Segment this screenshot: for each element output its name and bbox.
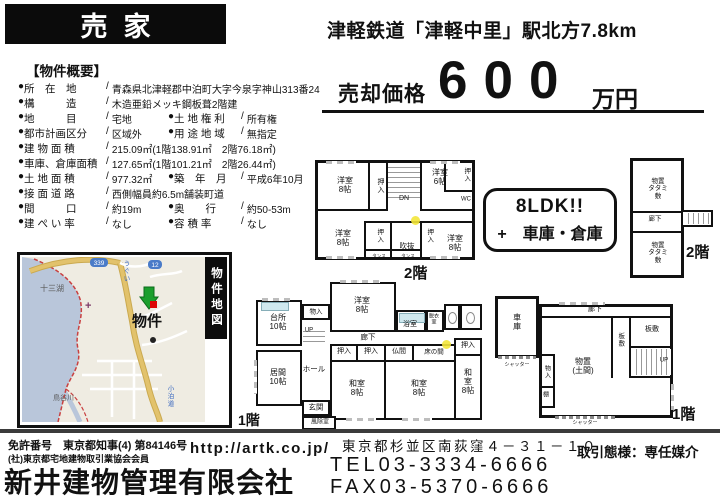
house-1f-label: 1階 bbox=[238, 410, 260, 430]
room-label: シャッター bbox=[572, 421, 597, 427]
overview-row: ●構 造/木造亜鉛メッキ鋼板葺2階建 bbox=[18, 96, 318, 111]
overview-row: ●所 在 地/青森県北津軽郡中泊町大字今泉字神山313番24 bbox=[18, 81, 318, 96]
overview-field: ●車庫、倉庫面積/127.65㎡(1階101.21㎡ 2階26.44㎡) bbox=[18, 156, 276, 171]
room-label: 床の間 bbox=[424, 348, 444, 355]
price-unit: 万円 bbox=[592, 80, 638, 114]
highlight-dot bbox=[411, 216, 420, 225]
field-value: 区域外 bbox=[112, 126, 142, 141]
map-tab-title: 物件地図 bbox=[205, 257, 227, 339]
field-label: 用 途 地 域 bbox=[174, 126, 238, 141]
overview-row: ●土 地 面 積/977.32㎡●築 年 月/平成6年10月 bbox=[18, 171, 318, 186]
field-value: 約50-53m bbox=[247, 201, 291, 216]
room-label: 和室 8帖 bbox=[349, 379, 365, 397]
phone-number: TEL03-3334-6666 bbox=[330, 454, 551, 477]
field-label: 地 目 bbox=[24, 111, 103, 126]
room-label: 押入 bbox=[461, 342, 475, 350]
overview-rows: ●所 在 地/青森県北津軽郡中泊町大字今泉字神山313番24●構 造/木造亜鉛メ… bbox=[18, 81, 318, 231]
field-value: 平成6年10月 bbox=[247, 171, 304, 186]
field-label: 建 ぺ い 率 bbox=[24, 216, 103, 231]
house-1f-floorplan: 洋室 8帖物入台所 10帖浴室脱衣 室UP廊下居間 10帖ホール玄関風除室押入押… bbox=[256, 282, 482, 430]
overview-row: ●建 ぺ い 率/なし●容 積 率/なし bbox=[18, 216, 318, 231]
room-label: 棚 bbox=[543, 393, 549, 400]
field-label: 築 年 月 bbox=[174, 171, 238, 186]
company-address: 東京都杉並区南荻窪４－３１－１０ bbox=[342, 435, 598, 455]
field-separator: / bbox=[103, 81, 112, 96]
field-value: なし bbox=[112, 216, 132, 231]
room-label: UP bbox=[305, 328, 313, 335]
field-separator: / bbox=[103, 111, 112, 126]
room-label: 押入 bbox=[425, 229, 432, 244]
company-name: 新井建物管理有限会社 bbox=[4, 461, 294, 501]
field-value: なし bbox=[247, 216, 267, 231]
field-label: 建 物 面 積 bbox=[24, 141, 103, 156]
room-label: 物置 (土間) bbox=[572, 357, 593, 375]
room-label: 廊下 bbox=[588, 306, 602, 314]
overview-field: ●土 地 面 積/977.32㎡ bbox=[18, 171, 168, 186]
field-value: 215.09㎡(1階138.91㎡ 2階76.18㎡) bbox=[112, 141, 276, 156]
price-label: 売却価格 bbox=[338, 78, 426, 108]
field-separator: / bbox=[103, 126, 112, 141]
field-separator: / bbox=[103, 216, 112, 231]
field-value: 所有権 bbox=[247, 111, 277, 126]
toilet-fixture bbox=[466, 312, 475, 324]
license-number: 免許番号 東京都知事(4) 第84146号 bbox=[8, 437, 187, 453]
overview-field: ●都市計画区分/区域外 bbox=[18, 126, 168, 141]
overview-field: ●築 年 月/平成6年10月 bbox=[168, 171, 304, 186]
fax-number: FAX03-5370-6666 bbox=[330, 476, 552, 499]
room-label: 押入 bbox=[462, 168, 469, 183]
field-separator: / bbox=[238, 171, 247, 186]
room-label: 和室 8帖 bbox=[461, 368, 475, 396]
location-map-frame: 339 12 十三湖 鳥谷川 小泊道 うぐい + 物件 物件地図 bbox=[17, 252, 232, 428]
field-separator: / bbox=[103, 171, 112, 186]
field-separator: / bbox=[103, 156, 112, 171]
overview-row: ●都市計画区分/区域外●用 途 地 域/無指定 bbox=[18, 126, 318, 141]
room-label: 押入 bbox=[376, 178, 384, 194]
field-value: 127.65㎡(1階101.21㎡ 2階26.44㎡) bbox=[112, 156, 276, 171]
property-map-label: 物件 bbox=[132, 310, 162, 331]
overview-row: ●車庫、倉庫面積/127.65㎡(1階101.21㎡ 2階26.44㎡) bbox=[18, 156, 318, 171]
map-graphic: 339 12 bbox=[22, 257, 205, 422]
overview-field: ●用 途 地 域/無指定 bbox=[168, 126, 277, 141]
price-underline bbox=[322, 110, 704, 113]
room-label: 廊下 bbox=[649, 215, 662, 222]
sale-title-text: 売家 bbox=[65, 5, 167, 44]
road-name-label-top: うぐい bbox=[120, 260, 130, 283]
room-label: 和室 8帖 bbox=[411, 379, 427, 397]
room-label: 押入 bbox=[337, 348, 351, 356]
field-label: 奥 行 bbox=[174, 201, 238, 216]
house-2f-floorplan: 洋室 8帖押入DN洋室 6帖押入WC洋室 8帖押入吹抜タンスタンス押入洋室 8帖 bbox=[315, 160, 475, 260]
shrine-cross-symbol: + bbox=[85, 300, 91, 312]
house-2f-label: 2階 bbox=[404, 262, 427, 283]
field-label: 容 積 率 bbox=[174, 216, 238, 231]
room-label: 吹抜 bbox=[400, 243, 415, 252]
room-label: 浴室 bbox=[403, 321, 417, 329]
storage-2f-stair-arm bbox=[681, 210, 713, 227]
field-separator: / bbox=[238, 216, 247, 231]
field-separator: / bbox=[238, 126, 247, 141]
room-label: DN bbox=[399, 195, 409, 203]
overview-field: ●土 地 権 利/所有権 bbox=[168, 111, 277, 126]
sale-title-banner: 売家 bbox=[5, 4, 226, 44]
field-label: 土 地 権 利 bbox=[174, 111, 238, 126]
overview-field: ●構 造/木造亜鉛メッキ鋼板葺2階建 bbox=[18, 96, 237, 111]
room-label: 居間 10帖 bbox=[270, 368, 287, 386]
room-label: 押入 bbox=[364, 348, 378, 356]
field-label: 土 地 面 積 bbox=[24, 171, 103, 186]
room-label: シャッター bbox=[504, 363, 529, 369]
room-label: 仏間 bbox=[392, 348, 406, 356]
property-square-marker bbox=[150, 301, 157, 308]
room-label: 風除室 bbox=[311, 420, 329, 427]
overview-field: ●建 ぺ い 率/なし bbox=[18, 216, 168, 231]
field-value: 青森県北津軽郡中泊町大字今泉字神山313番24 bbox=[112, 81, 320, 96]
room-label: 脱衣 室 bbox=[429, 314, 439, 326]
room-label: 物置 タタミ敷 bbox=[647, 242, 670, 264]
overview-row: ●接 面 道 路/西側幅員約6.5m舗装町道 bbox=[18, 186, 318, 201]
room-label: 台所 10帖 bbox=[270, 313, 287, 331]
overview-row: ●建 物 面 積/215.09㎡(1階138.91㎡ 2階76.18㎡) bbox=[18, 141, 318, 156]
room-label: 板敷 bbox=[645, 326, 659, 334]
badge-garage: + 車庫・倉庫 bbox=[497, 220, 602, 244]
field-value: 約19m bbox=[112, 201, 141, 216]
road-name-label-bottom: 小泊道 bbox=[164, 385, 174, 408]
field-value: 木造亜鉛メッキ鋼板葺2階建 bbox=[112, 96, 238, 111]
overview-field: ●接 面 道 路/西側幅員約6.5m舗装町道 bbox=[18, 186, 224, 201]
storage-2f-floorplan: 物置 タタミ敷廊下物置 タタミ敷 bbox=[630, 158, 684, 278]
location-map: 339 12 十三湖 鳥谷川 小泊道 うぐい + 物件 bbox=[22, 257, 205, 422]
overview-field: ●所 在 地/青森県北津軽郡中泊町大字今泉字神山313番24 bbox=[18, 81, 320, 96]
field-value: 西側幅員約6.5m舗装町道 bbox=[112, 186, 224, 201]
room-label: 洋室 8帖 bbox=[354, 296, 370, 314]
room-label: タンス bbox=[401, 253, 414, 258]
field-separator: / bbox=[238, 201, 247, 216]
field-value: 宅地 bbox=[112, 111, 132, 126]
field-label: 間 口 bbox=[24, 201, 103, 216]
field-separator: / bbox=[238, 111, 247, 126]
poi-dot bbox=[150, 337, 156, 343]
field-separator: / bbox=[103, 96, 112, 111]
station-distance-line: 津軽鉄道「津軽中里」駅北方7.8km bbox=[327, 16, 637, 43]
overview-section-title: 【物件概要】 bbox=[26, 60, 107, 80]
field-label: 所 在 地 bbox=[24, 81, 103, 96]
overview-field: ●奥 行/約50-53m bbox=[168, 201, 291, 216]
field-separator: / bbox=[103, 141, 112, 156]
room-label: タンス bbox=[372, 253, 385, 258]
storage-2f-label: 2階 bbox=[686, 241, 709, 262]
room-label: WC bbox=[461, 197, 471, 204]
overview-field: ●容 積 率/なし bbox=[168, 216, 267, 231]
room-label: ホール bbox=[303, 366, 326, 375]
route-shield-left: 339 bbox=[94, 260, 105, 267]
overview-row: ●地 目/宅地●土 地 権 利/所有権 bbox=[18, 111, 318, 126]
room-label: 物入 bbox=[310, 308, 323, 315]
room-label: 板敷 bbox=[616, 333, 623, 348]
garage-1f-label: 1階 bbox=[672, 403, 695, 424]
field-separator: / bbox=[103, 186, 112, 201]
room-label: 押入 bbox=[375, 229, 382, 244]
overview-field: ●間 口/約19m bbox=[18, 201, 168, 216]
lake-label: 十三湖 bbox=[40, 283, 64, 294]
room-label: 玄関 bbox=[309, 404, 324, 413]
room-label: 物入 bbox=[543, 365, 550, 379]
field-label: 車庫、倉庫面積 bbox=[24, 156, 103, 171]
overview-row: ●間 口/約19m●奥 行/約50-53m bbox=[18, 201, 318, 216]
route-shield-right: 12 bbox=[151, 262, 159, 269]
transaction-type: 取引態様：専任媒介 bbox=[577, 441, 699, 461]
room-label: 廊下 bbox=[361, 334, 376, 343]
river-label: 鳥谷川 bbox=[53, 393, 74, 403]
overview-field: ●地 目/宅地 bbox=[18, 111, 168, 126]
field-value: 977.32㎡ bbox=[112, 171, 153, 186]
price-amount: 600 bbox=[438, 50, 574, 111]
room-label: 車庫 bbox=[512, 313, 521, 331]
field-label: 都市計画区分 bbox=[24, 126, 103, 141]
field-value: 無指定 bbox=[247, 126, 277, 141]
overview-field: ●建 物 面 積/215.09㎡(1階138.91㎡ 2階76.18㎡) bbox=[18, 141, 276, 156]
room-label: 洋室 8帖 bbox=[335, 229, 351, 247]
field-separator: / bbox=[103, 201, 112, 216]
field-label: 接 面 道 路 bbox=[24, 186, 103, 201]
footer-divider bbox=[0, 429, 720, 433]
company-url: http://artk.co.jp/ bbox=[190, 440, 330, 457]
badge-ldk: 8LDK!! bbox=[516, 196, 584, 218]
room-label: 洋室 8帖 bbox=[337, 176, 353, 194]
room-count-badge: 8LDK!! + 車庫・倉庫 bbox=[483, 188, 617, 252]
room-label: UP bbox=[660, 358, 668, 365]
toilet-fixture bbox=[448, 312, 457, 324]
room-label: 物置 タタミ敷 bbox=[647, 178, 670, 200]
room-label: 洋室 8帖 bbox=[447, 234, 463, 252]
field-label: 構 造 bbox=[24, 96, 103, 111]
room-label: 洋室 6帖 bbox=[432, 168, 448, 186]
